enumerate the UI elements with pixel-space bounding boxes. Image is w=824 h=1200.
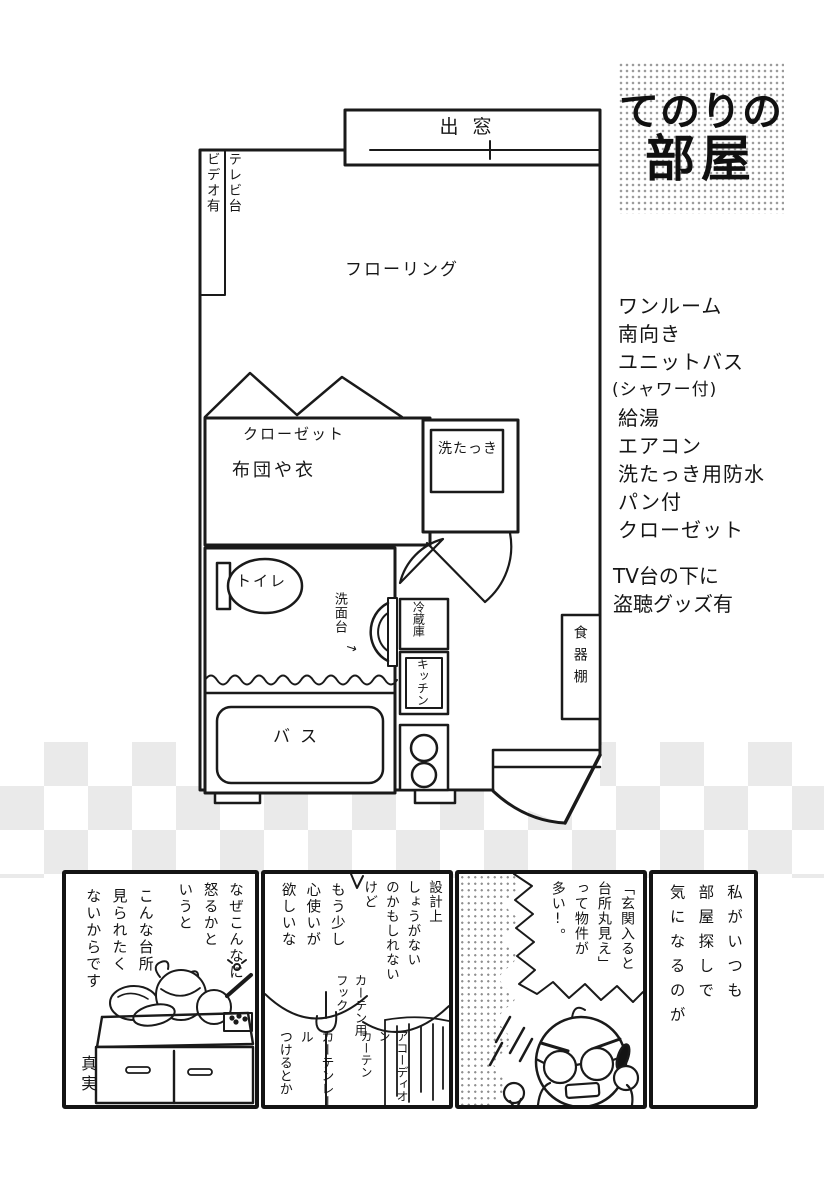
feature-item: エアコン: [618, 432, 765, 460]
feature-item: (シャワー付): [612, 376, 765, 404]
speed-lines: [490, 1017, 532, 1065]
raised-fist: [504, 1083, 524, 1105]
comic-panel-complaint: 「玄関入ると 台所丸見え」 って物件が 多い!。: [455, 870, 647, 1109]
cupboard-label: 食器棚: [571, 625, 588, 713]
truth-caption: 真実: [78, 1055, 97, 1099]
feature-item: ユニットバス: [618, 348, 765, 376]
bubble-design-text: 設計上 しょうがない のかもしれない けど: [358, 880, 444, 1030]
feature-item: 給湯: [618, 404, 765, 432]
toilet-label: トイレ: [236, 570, 287, 591]
bath-label: バス: [217, 722, 383, 747]
fridge-label: 冷蔵庫: [411, 601, 425, 647]
note-line1: TV台の下に: [613, 562, 733, 590]
feature-list: ワンルーム 南向き ユニットバス (シャワー付) 給湯 エアコン 洗たっき用防水…: [618, 292, 765, 544]
closet-contents-label: 布団や衣: [232, 456, 316, 482]
comic-panel-intro: 私がいつも 部屋探しで 気になるのが: [649, 870, 758, 1109]
note-line2: 盗聴グッズ有: [613, 590, 733, 618]
feature-item: クローゼット: [618, 516, 765, 544]
kitchen-label: キッチン: [415, 658, 429, 710]
washer-label: 洗たっき: [438, 438, 498, 458]
ear: [614, 1066, 638, 1090]
title-line2: 部屋: [645, 133, 757, 186]
comic-panel-truth: なぜこんなに 怒るかと いうと こんな台所 見られたく ないからです: [62, 870, 259, 1109]
cabinet: [96, 1047, 253, 1103]
bay-window-label: 出窓: [345, 112, 600, 139]
washstand-label: 洗面台: [330, 592, 347, 654]
tv-stand-note: TV台の下に 盗聴グッズ有: [613, 562, 733, 618]
feature-item: 南向き: [618, 320, 765, 348]
feature-item: 洗たっき用防水: [618, 460, 765, 488]
accordion-label: アコーディオン カーテン: [357, 1030, 411, 1108]
hook-label: カーテン用 フック: [331, 974, 369, 1038]
washing-machine: [423, 420, 518, 532]
fly-icon: [228, 960, 246, 970]
tv-stand-label: テレビ台 ビデオ有: [200, 152, 243, 302]
dirty-dishes-drawing: [94, 955, 256, 1105]
shouting-mouth: [566, 1083, 600, 1098]
closet-label: クローゼット: [243, 423, 345, 444]
flooring-label: フローリング: [345, 255, 459, 280]
manga-room-page: てのりの 部屋: [0, 0, 824, 1200]
rail-label: カーテンレール つけるとか: [273, 1030, 335, 1108]
intro-text: 私がいつも 部屋探しで 気になるのが: [662, 884, 748, 1096]
title-logo: てのりの 部屋: [618, 62, 784, 214]
comic-panel-curtain: 設計上 しょうがない のかもしれない けど もう少し 心使いが 欲しいな カーテ…: [261, 870, 453, 1109]
feature-item: パン付: [618, 488, 765, 516]
title-line1: てのりの: [619, 91, 783, 133]
angry-character-drawing: [486, 987, 641, 1105]
feature-item: ワンルーム: [618, 292, 765, 320]
